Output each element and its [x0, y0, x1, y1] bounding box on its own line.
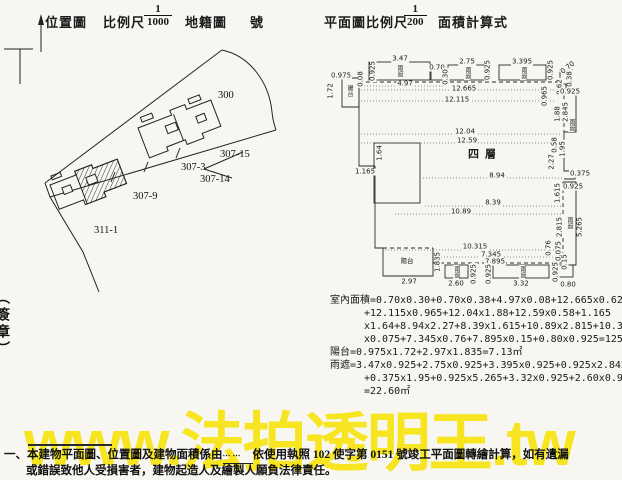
dimension-label: 10.89 — [450, 209, 472, 216]
document-page: 位置圖 比例尺 11000 地籍圖 號 平面圖比例尺 1200 面積計算式 — [0, 0, 622, 480]
dimension-label: 5.265 — [577, 216, 584, 238]
parcel-label: 307-3 — [181, 162, 206, 173]
calc-line: x1.64+8.94x2.27+8.39x1.615+10.89x2.815+1… — [330, 320, 622, 333]
dimension-label: 1.88 — [555, 105, 562, 123]
dimension-label: 0.30 — [443, 68, 450, 86]
dimension-label: 1.835 — [435, 251, 442, 273]
canopy-balcony-label: 雨遮 — [520, 66, 526, 80]
north-arrow-icon — [4, 14, 44, 84]
dimension-label: 0.975 — [330, 73, 352, 80]
dimension-label: 12.59 — [456, 138, 478, 145]
dimension-label: 10.315 — [462, 244, 489, 251]
area-calc-title: 面積計算式 — [438, 12, 508, 31]
dimension-label: 0.925 — [471, 263, 478, 285]
dimension-label: 3.395 — [511, 59, 533, 66]
dimension-label: 0.58 — [552, 136, 559, 154]
dimension-label: 0.925 — [486, 263, 493, 285]
canopy-balcony-label: 雨遮 — [566, 216, 572, 230]
dimension-label: 2.75 — [458, 59, 476, 66]
footnote-line-1: 一、本建物平面圖、位置圖及建物面積係由⋯⋯依使用執照 102 使字第 0151 … — [4, 448, 620, 464]
area-calculations: 室內面積=0.70x0.30+0.70x0.38+4.97x0.08+12.66… — [330, 294, 622, 398]
dimension-label: 0.925 — [370, 60, 377, 82]
dimension-label: 0.925 — [548, 59, 555, 81]
dimension-label: 0.965 — [542, 85, 549, 107]
calc-line: x0.075+7.345x0.76+7.895x0.15+0.80x0.925=… — [330, 333, 622, 346]
dimension-label: 0.08 — [358, 70, 365, 88]
canopy-balcony-label: 雨遮 — [519, 265, 525, 279]
hatched-building — [75, 155, 129, 203]
site-map: 300 307-15 307-14 307-3 307-9 311-1 — [0, 0, 330, 295]
parcel-label: 307-14 — [200, 174, 230, 185]
floor-plan-labels: 0.9751.72陽台0.080.9253.47雨遮4.970.700.302.… — [325, 55, 622, 307]
dimension-label: 12.04 — [454, 129, 476, 136]
building-outline-right — [135, 92, 223, 159]
dimension-label: 2.60 — [447, 281, 465, 288]
dimension-label: 4.97 — [396, 81, 414, 88]
dimension-label: 8.39 — [484, 200, 502, 207]
dimension-label: 1.615 — [555, 182, 562, 204]
dimension-label: 3.32 — [512, 281, 530, 288]
divider-line — [28, 444, 112, 446]
dimension-label: 0.76 — [546, 239, 553, 257]
canopy-balcony-label: 雨遮 — [464, 66, 470, 80]
dimension-label: 2.27 — [549, 153, 556, 171]
dimension-label: 2.815 — [557, 216, 564, 238]
canopy-balcony-label: 雨遮 — [396, 64, 402, 78]
dimension-label: 1.165 — [354, 169, 376, 176]
parcel-label: 307-15 — [220, 149, 250, 160]
footnote: 一、本建物平面圖、位置圖及建物面積係由⋯⋯依使用執照 102 使字第 0151 … — [4, 448, 620, 478]
parcel-label: 307-9 — [133, 191, 158, 202]
calc-line: 雨遮=3.47x0.925+2.75x0.925+3.395x0.925+0.9… — [330, 359, 622, 372]
canopy-balcony-label: 陽台 — [346, 84, 352, 98]
calc-line: +12.115x0.965+12.04x1.88+12.59x0.58+1.16… — [330, 307, 622, 320]
dimension-label: 1.95 — [560, 140, 567, 158]
plan-scale-title: 平面圖比例尺 — [324, 12, 408, 31]
dimension-label: 0.38 — [567, 70, 574, 88]
calc-line: 陽台=0.975x1.72+2.97x1.835=7.13㎡ — [330, 346, 622, 359]
canopy-balcony-label: 雨遮 — [568, 118, 574, 132]
parcel-label: 300 — [218, 90, 234, 101]
dimension-label: 0.15 — [562, 253, 569, 271]
scale-fraction-200: 1200 — [404, 3, 427, 28]
dimension-label: 0.925 — [485, 59, 492, 81]
edge-stamp-text: （簽章） — [0, 290, 11, 358]
dimension-label: 0.925 — [559, 89, 581, 96]
floor-label: 四層 — [467, 149, 503, 160]
calc-line: +0.375x1.95+0.925x5.265+3.32x0.925+2.60x… — [330, 372, 622, 385]
building-outline-left — [47, 152, 128, 214]
dimension-label: 2.97 — [400, 279, 418, 286]
dimension-label: 0.80 — [559, 282, 577, 289]
dimension-label: 0.925 — [562, 184, 584, 191]
canopy-balcony-label: 雨遮 — [453, 265, 459, 279]
dimension-label: 8.94 — [488, 173, 506, 180]
blank-underline: ⋯⋯ — [223, 449, 253, 464]
dimension-label: 1.72 — [328, 82, 335, 100]
dimension-label: 0.925 — [553, 261, 560, 283]
canopy-balcony-label: 陽台 — [400, 258, 415, 265]
dimension-label: 3.47 — [391, 56, 409, 63]
dimension-label: 0.375 — [569, 171, 591, 178]
footnote-line-2: 或錯誤致他人受損害者，建物起造人及繪製人願負法律責任。 — [4, 464, 620, 478]
dimension-label: 12.665 — [451, 86, 478, 93]
dimension-label: 1.64 — [377, 144, 384, 162]
calc-line: 室內面積=0.70x0.30+0.70x0.38+4.97x0.08+12.66… — [330, 294, 622, 307]
dimension-label: 12.115 — [444, 97, 471, 104]
parcel-label: 311-1 — [94, 225, 118, 236]
